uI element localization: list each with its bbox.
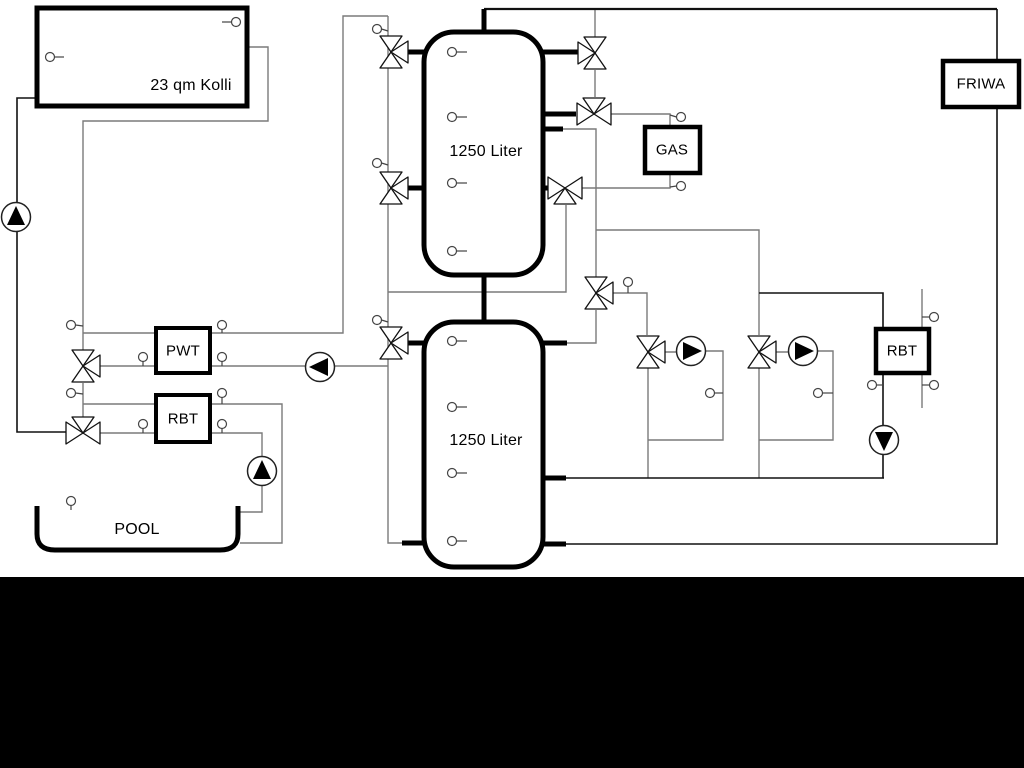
sensor-icon [670,113,686,122]
three-way-valve-icon[interactable] [66,417,100,444]
pipe-valve9-tank2 [567,310,596,343]
sensor-icon [67,389,84,398]
three-way-valve-icon[interactable] [380,327,408,359]
pipe-branch-group1 [613,293,647,335]
sensor-icon [814,389,834,398]
sensor-icon [218,420,227,434]
three-way-valve-icon[interactable] [577,98,611,125]
sensor-icon [706,389,724,398]
pipe-branch-group2 [596,230,759,335]
three-way-valve-icon[interactable] [380,172,408,204]
collector-label: 23 qm Kolli [150,77,231,95]
pool-label: POOL [114,521,159,539]
gas-label: GAS [656,142,688,159]
sensor-icon [624,278,633,294]
pump-right-icon[interactable] [789,337,818,366]
pipe-friwa-line [565,9,997,544]
three-way-valve-icon[interactable] [585,277,613,309]
pump-up-icon[interactable] [2,203,31,232]
sensor-icon [67,321,84,330]
sensor-icon [67,497,76,511]
tank-top-label: 1250 Liter [449,143,522,161]
sensor-icon [670,182,686,191]
pump-left-icon[interactable] [306,353,335,382]
pipe-left-rail [388,16,404,543]
rbt-left-label: RBT [168,411,199,428]
pwt-label: PWT [166,343,200,360]
sensor-icon [218,321,227,334]
three-way-valve-icon[interactable] [380,36,408,68]
sensor-icon [218,353,227,367]
bottom-black-band [0,577,1024,768]
sensor-icon [373,316,389,325]
pipe-solar-supply [17,98,66,432]
pump-up-icon[interactable] [248,457,277,486]
sensor-icon [922,381,939,390]
three-way-valve-icon[interactable] [72,350,100,382]
sensor-icon [868,381,884,390]
sensor-icon [373,25,389,34]
friwa-label: FRIWA [957,76,1006,93]
pipe-rbt-right-feed [759,293,883,329]
sensor-icon [139,353,148,367]
pump-right-icon[interactable] [677,337,706,366]
tank-bottom-label: 1250 Liter [449,432,522,450]
sensor-icon [139,420,148,434]
three-way-valve-icon[interactable] [578,37,606,69]
sensor-icon [218,389,227,405]
schematic-page: 23 qm Kolli 1250 Liter 1250 Liter PWT RB… [0,0,1024,768]
three-way-valve-icon[interactable] [748,336,776,368]
pump-down-icon[interactable] [870,426,899,455]
three-way-valve-icon[interactable] [637,336,665,368]
sensor-icon [922,313,939,322]
sensor-icon [373,159,389,168]
three-way-valve-icon[interactable] [548,177,582,204]
rbt-right-label: RBT [887,343,918,360]
